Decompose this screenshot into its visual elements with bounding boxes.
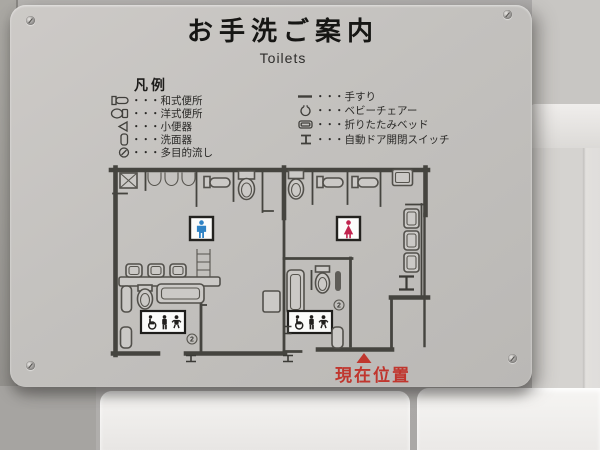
- washbasins-right-wall: [404, 209, 419, 272]
- handrail-icon: [288, 90, 314, 103]
- wall-tile-bottom-right: [417, 388, 600, 450]
- washbasin: [332, 327, 343, 348]
- washbasin: [122, 286, 132, 312]
- male-toilet-sign: [190, 217, 213, 240]
- accessible-room-mens: 2: [121, 284, 208, 348]
- door-switch: [399, 277, 414, 290]
- legend-label: 手すり: [345, 89, 377, 104]
- legend-label: 自動ドア開閉スイッチ: [345, 132, 450, 147]
- japanese-squat-toilet-icon: [98, 94, 130, 107]
- legend-item-urinal: ・・・ 小便器: [98, 120, 213, 133]
- japanese-toilet-stall: [317, 177, 343, 188]
- svg-text:2: 2: [190, 337, 194, 344]
- japanese-toilet-stall: [352, 177, 378, 188]
- accessible-room-womens: 2: [285, 266, 345, 348]
- fixture-on-divider: [263, 291, 280, 312]
- door-switch: [283, 356, 293, 362]
- door-switch: [186, 356, 196, 362]
- multipurpose-sink-icon: [98, 146, 130, 159]
- sign-title: お手洗ご案内: [22, 11, 544, 48]
- current-location-label: 現在位置: [335, 365, 411, 385]
- folding-bed: [393, 170, 413, 186]
- folding-bed-icon: [288, 118, 314, 131]
- wall-lower-left: [0, 386, 96, 450]
- baby-chair-icon: [288, 104, 314, 117]
- sign-plate: お手洗ご案内 Toilets 凡例 ・・・ 和式便所 ・・・ 洋式便所: [10, 5, 532, 387]
- legend-item-baby-chair: ・・・ ベビーチェアー: [288, 103, 450, 117]
- washbasin-icon: [98, 133, 130, 146]
- wall-panel-highlight-band: [530, 104, 600, 150]
- screw-bottom-left: [26, 361, 35, 370]
- washbasins: [126, 264, 186, 277]
- urinal: [148, 173, 161, 186]
- wall-panel-right: [532, 148, 600, 388]
- multipurpose-sink: [197, 249, 210, 277]
- legend-item-japanese-toilet: ・・・ 和式便所: [98, 94, 213, 107]
- legend-item-handrail: ・・・ 手すり: [288, 89, 450, 103]
- female-toilet-sign: [337, 217, 360, 240]
- photo-of-toilet-guide-sign: お手洗ご案内 Toilets 凡例 ・・・ 和式便所 ・・・ 洋式便所: [0, 0, 600, 450]
- current-location-arrow: [357, 353, 372, 363]
- wall-tile-bottom-center: [100, 391, 410, 450]
- western-toilet-stall: [289, 171, 304, 200]
- legend-item-door-switch: ・・・ 自動ドア開閉スイッチ: [288, 132, 450, 146]
- legend-heading: 凡例: [134, 75, 168, 95]
- legend-label: 折りたたみベッド: [345, 117, 429, 132]
- washbasin: [121, 327, 132, 348]
- sign-subtitle: Toilets: [22, 50, 544, 66]
- legend-label: 多目的流し: [161, 145, 214, 160]
- legend-item-washbasin: ・・・ 洗面器: [98, 133, 213, 146]
- urinal: [182, 173, 195, 186]
- svg-text:2: 2: [337, 303, 341, 310]
- legend-item-folding-bed: ・・・ 折りたたみベッド: [288, 118, 450, 132]
- folding-bed: [157, 284, 204, 303]
- door-switch-icon: [288, 133, 314, 146]
- urinal-icon: [98, 120, 130, 133]
- western-toilet-icon: [98, 107, 130, 120]
- legend-item-multipurpose-sink: ・・・ 多目的流し: [98, 146, 213, 159]
- womens-room: 2: [263, 170, 419, 362]
- legend-right-column: ・・・ 手すり ・・・ ベビーチェアー ・・・ 折りたたみベッド: [288, 89, 450, 146]
- legend-label: ベビーチェアー: [345, 103, 418, 118]
- grab-bar: [335, 271, 341, 291]
- japanese-toilet-stall: [204, 177, 230, 188]
- folding-bed: [287, 270, 304, 314]
- western-toilet-stall: [239, 171, 255, 200]
- floor-plan: 2: [102, 161, 442, 387]
- legend-left-column: ・・・ 和式便所 ・・・ 洋式便所 ・・・ 小便器: [98, 94, 213, 159]
- legend-item-western-toilet: ・・・ 洋式便所: [98, 107, 213, 120]
- screw-bottom-right: [508, 354, 517, 363]
- urinal: [165, 173, 178, 186]
